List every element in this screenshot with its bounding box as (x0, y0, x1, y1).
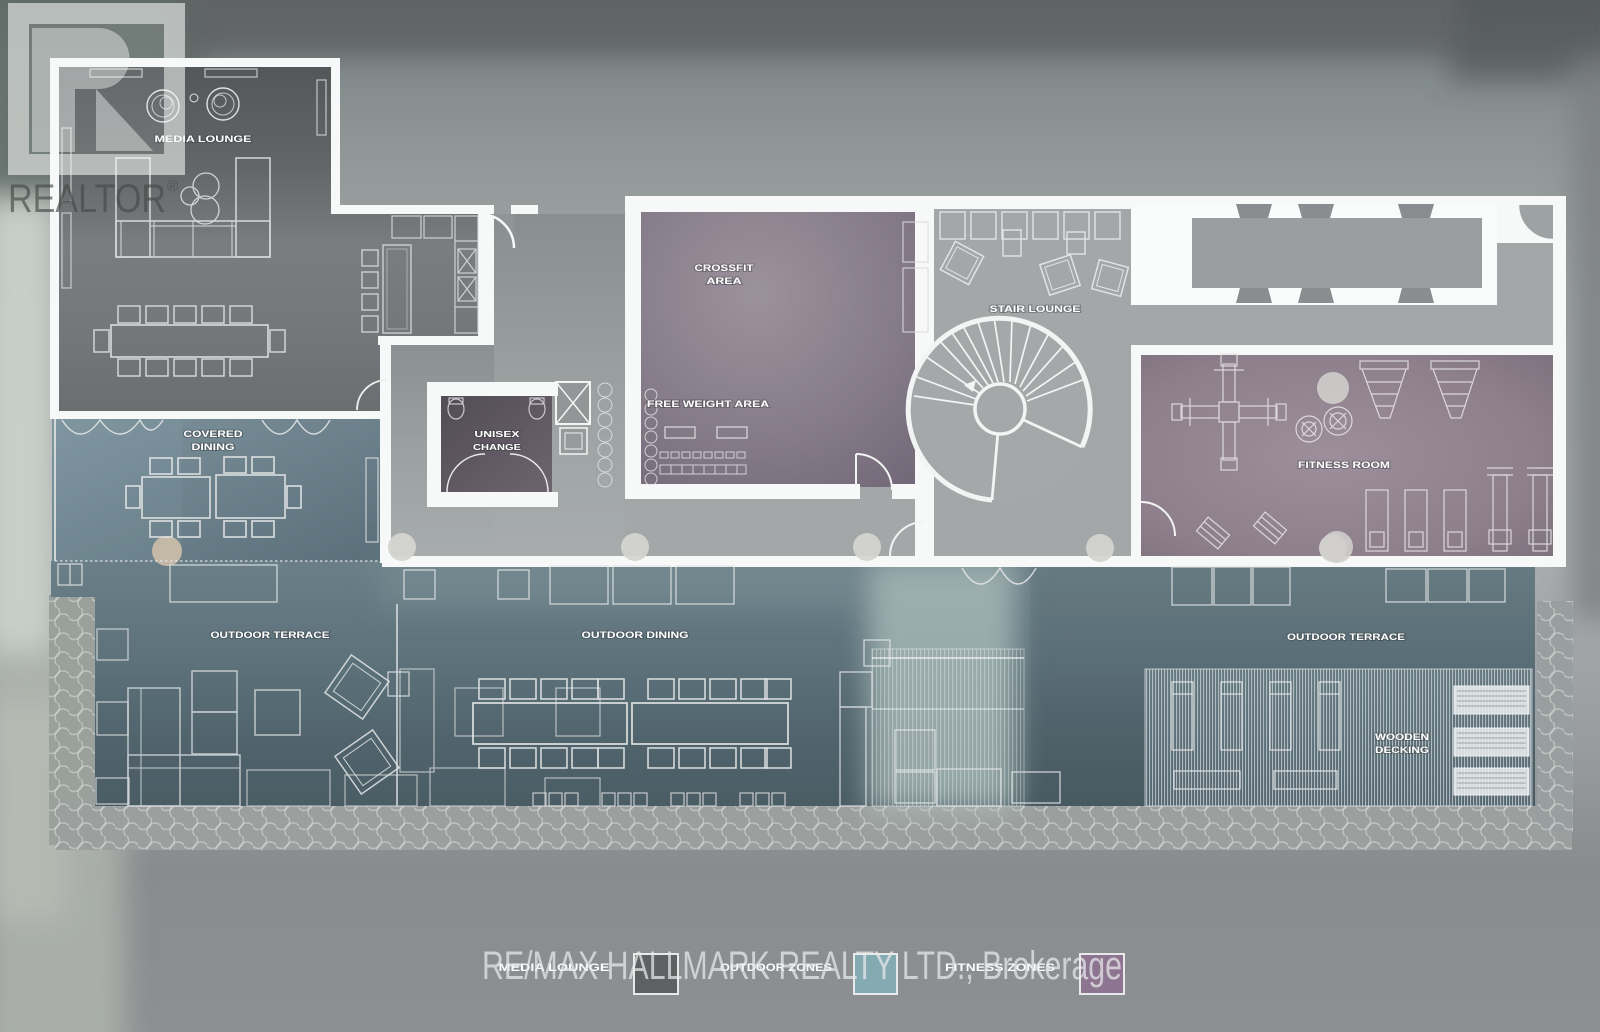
svg-text:AREA: AREA (707, 276, 743, 286)
svg-text:FITNESS ROOM: FITNESS ROOM (1298, 460, 1390, 470)
svg-text:®: ® (167, 178, 178, 195)
svg-text:CROSSFIT: CROSSFIT (695, 263, 755, 273)
svg-text:CHANGE: CHANGE (473, 442, 521, 452)
svg-text:REALTOR: REALTOR (8, 177, 166, 221)
svg-text:WOODEN: WOODEN (1375, 732, 1429, 742)
svg-text:DINING: DINING (192, 442, 235, 452)
svg-text:COVERED: COVERED (184, 429, 244, 439)
svg-text:RE/MAX HALLMARK REALTY LTD., B: RE/MAX HALLMARK REALTY LTD., Brokerage (482, 944, 1122, 988)
svg-text:STAIR LOUNGE: STAIR LOUNGE (990, 304, 1081, 314)
svg-text:DECKING: DECKING (1375, 745, 1429, 755)
svg-text:OUTDOOR TERRACE: OUTDOOR TERRACE (1287, 632, 1405, 642)
svg-text:UNISEX: UNISEX (475, 429, 520, 439)
svg-text:OUTDOOR TERRACE: OUTDOOR TERRACE (211, 630, 330, 640)
svg-text:OUTDOOR DINING: OUTDOOR DINING (582, 630, 689, 640)
svg-text:FREE WEIGHT AREA: FREE WEIGHT AREA (647, 399, 770, 409)
